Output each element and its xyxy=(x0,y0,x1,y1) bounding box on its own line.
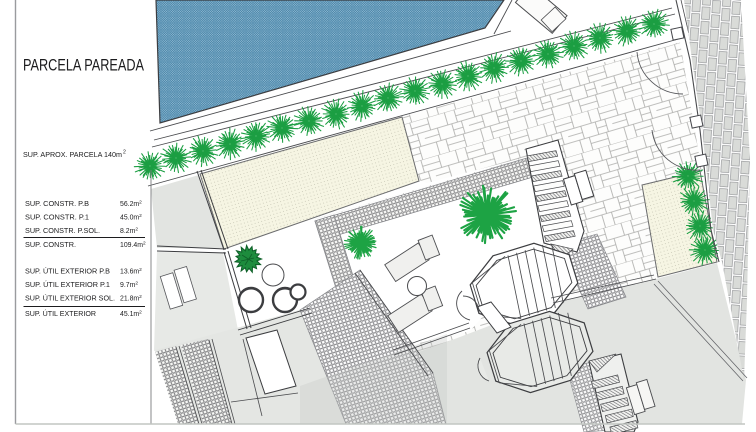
svg-text:45.0m2: 45.0m2 xyxy=(120,213,142,221)
svg-text:SUP. APROX. PARCELA 140m: SUP. APROX. PARCELA 140m xyxy=(23,150,122,159)
svg-text:13.6m2: 13.6m2 xyxy=(120,267,142,275)
svg-text:2: 2 xyxy=(123,150,126,156)
svg-text:SUP. CONSTR. P.B: SUP. CONSTR. P.B xyxy=(25,201,89,208)
svg-text:45.1m2: 45.1m2 xyxy=(120,310,142,318)
svg-text:SUP. ÚTIL EXTERIOR P.B: SUP. ÚTIL EXTERIOR P.B xyxy=(25,267,110,276)
svg-text:SUP. ÚTIL EXTERIOR: SUP. ÚTIL EXTERIOR xyxy=(25,309,96,318)
svg-text:PARCELA PAREADA: PARCELA PAREADA xyxy=(23,57,144,75)
svg-text:SUP. CONSTR. P.1: SUP. CONSTR. P.1 xyxy=(25,215,89,222)
svg-text:SUP. ÚTIL EXTERIOR P.1: SUP. ÚTIL EXTERIOR P.1 xyxy=(25,280,110,289)
svg-text:SUP. CONSTR.: SUP. CONSTR. xyxy=(25,242,76,249)
svg-text:SUP. ÚTIL EXTERIOR SOL.: SUP. ÚTIL EXTERIOR SOL. xyxy=(25,294,115,303)
svg-text:109.4m2: 109.4m2 xyxy=(120,241,146,249)
svg-text:SUP. CONSTR. P.SOL.: SUP. CONSTR. P.SOL. xyxy=(25,228,100,235)
svg-text:21.8m2: 21.8m2 xyxy=(120,294,142,302)
svg-text:56.2m2: 56.2m2 xyxy=(120,200,142,208)
